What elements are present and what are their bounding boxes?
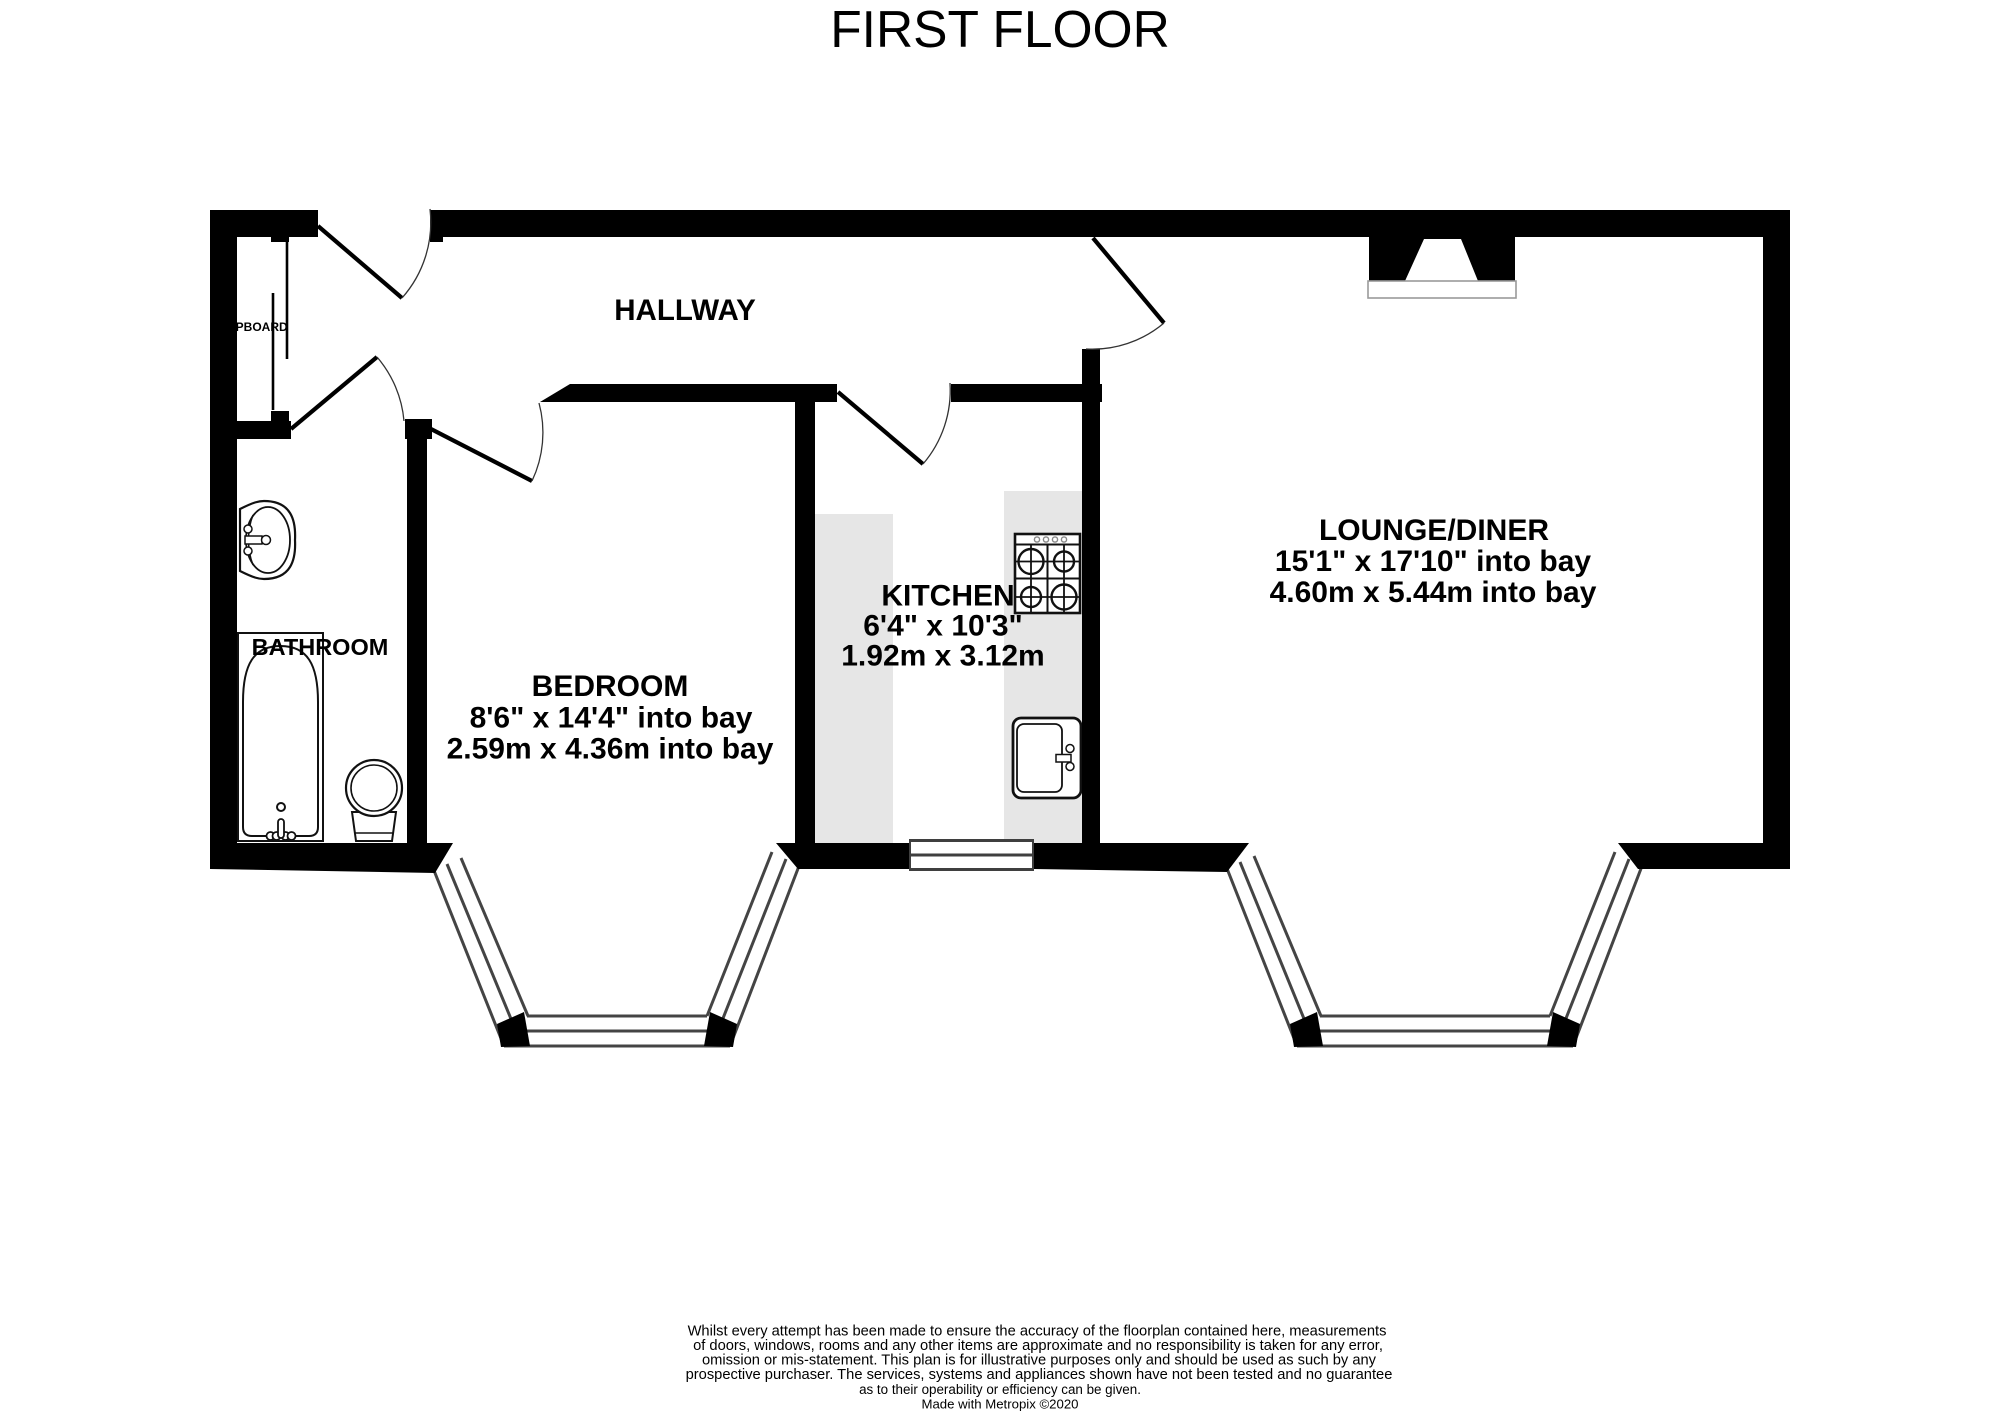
svg-text:HALLWAY: HALLWAY <box>614 294 756 327</box>
svg-text:15'1" x 17'10" into bay: 15'1" x 17'10" into bay <box>1275 545 1592 578</box>
svg-text:6'4" x 10'3": 6'4" x 10'3" <box>863 610 1023 643</box>
svg-text:as to their operability or eff: as to their operability or efficiency ca… <box>859 1382 1141 1397</box>
svg-text:BATHROOM: BATHROOM <box>252 634 389 660</box>
svg-text:Made with Metropix ©2020: Made with Metropix ©2020 <box>921 1396 1078 1411</box>
svg-text:CUPBOARD: CUPBOARD <box>218 320 288 334</box>
svg-text:2.59m x 4.36m into bay: 2.59m x 4.36m into bay <box>447 733 774 766</box>
svg-text:prospective purchaser. The ser: prospective purchaser. The services, sys… <box>686 1367 1393 1383</box>
svg-text:KITCHEN: KITCHEN <box>881 580 1014 613</box>
svg-text:LOUNGE/DINER: LOUNGE/DINER <box>1319 514 1549 547</box>
svg-text:4.60m x 5.44m into bay: 4.60m x 5.44m into bay <box>1270 576 1597 609</box>
svg-text:8'6" x 14'4" into bay: 8'6" x 14'4" into bay <box>470 702 753 735</box>
svg-text:FIRST FLOOR: FIRST FLOOR <box>830 0 1170 58</box>
svg-text:1.92m x 3.12m: 1.92m x 3.12m <box>841 640 1044 673</box>
svg-text:BEDROOM: BEDROOM <box>532 670 689 703</box>
